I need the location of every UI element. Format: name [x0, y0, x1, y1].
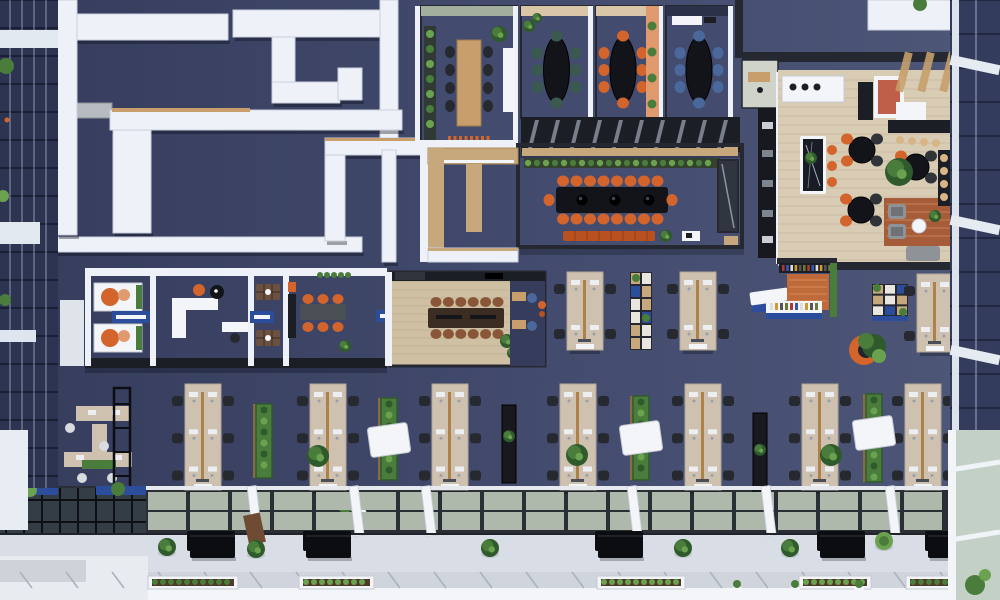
shape: [575, 453, 583, 461]
monitor: [806, 429, 815, 434]
shadow: [59, 235, 79, 239]
plant: [872, 349, 886, 363]
skylight-panel: [610, 512, 648, 530]
art-blob: [118, 289, 130, 301]
hanging-plant: [648, 48, 657, 57]
shadow: [920, 352, 950, 356]
hedge-leaf: [261, 451, 268, 458]
flowers: [539, 311, 545, 317]
room-divider: [150, 268, 156, 366]
meeting-chair: [637, 81, 648, 93]
keyboard: [318, 400, 321, 403]
conference-chair: [638, 176, 650, 187]
cabinet: [503, 48, 515, 112]
monitor: [825, 392, 834, 397]
hanging-plant: [648, 74, 657, 83]
meeting-chair: [445, 46, 455, 58]
shadow: [62, 40, 230, 44]
orange-dash: [470, 136, 473, 140]
bar-top: [888, 120, 952, 133]
shadow: [570, 350, 600, 354]
desk-row: [892, 384, 954, 494]
plant: [665, 579, 671, 585]
office-chair: [672, 396, 683, 406]
plant: [152, 579, 158, 585]
board-chair: [431, 329, 442, 339]
hedge-leaf: [261, 418, 268, 425]
sofa: [906, 246, 940, 261]
office-chair: [297, 471, 308, 481]
keyboard: [943, 290, 946, 293]
shelf-cubby: [631, 325, 640, 336]
shelf-cubby: [642, 273, 651, 284]
hedge-leaf: [871, 463, 878, 470]
monitor: [825, 429, 834, 434]
keyboard: [931, 437, 934, 440]
shadow: [85, 368, 387, 373]
meeting-chair: [570, 47, 581, 59]
book: [799, 265, 802, 271]
plant: [641, 579, 647, 585]
bench-arm: [303, 531, 309, 551]
monitor: [928, 392, 937, 397]
plant: [811, 579, 817, 585]
orange-dash: [459, 136, 462, 140]
office-chair: [99, 441, 109, 451]
keyboard: [688, 333, 691, 336]
facade-slab: [0, 430, 28, 530]
keyboard: [913, 400, 916, 403]
keyboard: [913, 474, 916, 477]
book: [815, 303, 818, 310]
hedge-leaf: [638, 399, 645, 406]
table-runner: [470, 315, 496, 319]
keyboard: [193, 474, 196, 477]
skylight-panel: [484, 512, 522, 530]
plant: [615, 160, 621, 166]
plant: [168, 579, 174, 585]
hanging-plant: [338, 272, 344, 278]
office-chair: [840, 471, 851, 481]
item: [757, 87, 763, 93]
office-chair: [348, 471, 359, 481]
monitor: [703, 280, 712, 285]
board-chair: [468, 329, 479, 339]
shape: [829, 453, 837, 461]
shape: [665, 235, 669, 239]
conf-wood-band: [522, 148, 738, 156]
wall-segment: [60, 14, 228, 40]
meeting-chair: [713, 47, 724, 59]
desk-sign: [916, 479, 929, 482]
office-chair: [789, 396, 800, 406]
keyboard: [440, 437, 443, 440]
desk-sign: [696, 479, 709, 482]
lounge-chair: [840, 194, 852, 205]
plant: [669, 160, 675, 166]
office-chair: [193, 284, 205, 296]
hedge-leaf: [638, 410, 645, 417]
plant: [617, 579, 623, 585]
facade-detail: [5, 118, 10, 123]
round-table: [848, 197, 874, 223]
wall-desk: [672, 16, 702, 25]
laptop: [704, 17, 716, 23]
bench: [820, 531, 865, 558]
skylight-panel: [484, 492, 522, 510]
office-chair: [672, 433, 683, 443]
monitor: [590, 325, 599, 330]
meeting-chair: [637, 64, 648, 76]
plant: [642, 160, 648, 166]
book: [824, 265, 827, 271]
bench: [306, 531, 351, 558]
book: [805, 303, 808, 310]
keyboard: [593, 333, 596, 336]
keyboard: [828, 474, 831, 477]
monitor: [314, 467, 323, 472]
office-chair: [348, 433, 359, 443]
booth-left: [428, 148, 444, 262]
boardroom-left-wall: [385, 272, 392, 366]
keyboard: [711, 474, 714, 477]
hedge-leaf: [871, 474, 878, 481]
desk-row: [419, 384, 481, 494]
wall-segment: [8, 237, 362, 252]
meeting-chair: [445, 82, 455, 94]
office-chair: [297, 396, 308, 406]
office-chair: [892, 471, 903, 481]
monitor: [921, 282, 930, 287]
tv-screen: [485, 273, 503, 279]
shape: [528, 25, 532, 29]
skylight-panel: [358, 512, 396, 530]
office-chair: [667, 329, 678, 339]
monitor: [208, 467, 217, 472]
plant: [216, 579, 222, 585]
shadow: [115, 233, 153, 237]
monitor: [88, 410, 96, 415]
lounge-chair: [871, 134, 883, 145]
appliance: [762, 210, 773, 217]
bar-stool: [940, 193, 948, 201]
bar-counter: [896, 102, 926, 122]
office-chair: [527, 293, 537, 303]
skylight-panel: [652, 512, 690, 530]
office-chair: [598, 396, 609, 406]
plant: [601, 579, 607, 585]
monitor: [708, 392, 717, 397]
plant: [642, 314, 650, 322]
book: [795, 265, 798, 271]
desk-end: [576, 344, 594, 349]
office-chair: [718, 284, 729, 294]
door-glass: [116, 315, 146, 319]
monitor: [590, 280, 599, 285]
appliance: [686, 233, 692, 238]
skylight-panel: [442, 492, 480, 510]
conference-chair: [584, 214, 596, 225]
conference-chair: [611, 176, 623, 187]
plant: [343, 579, 349, 585]
keyboard: [586, 400, 589, 403]
conference-chair: [571, 214, 583, 225]
board-chair: [455, 329, 466, 339]
flowers: [538, 301, 546, 309]
book: [786, 265, 789, 271]
meeting-chair: [303, 294, 314, 304]
monitor: [564, 429, 573, 434]
privacy-pod: [367, 422, 411, 457]
conference-chair: [598, 214, 610, 225]
book: [790, 265, 793, 271]
hanging-plant: [345, 272, 351, 278]
appliance: [762, 180, 773, 187]
wall-segment: [325, 155, 345, 241]
monitor: [684, 325, 693, 330]
wall-segment: [272, 82, 340, 103]
shelf-cubby: [642, 325, 651, 336]
office-chair: [605, 329, 616, 339]
wall-segment: [110, 110, 402, 130]
wall-segment: [113, 130, 151, 233]
shadow: [10, 252, 364, 256]
office-chair: [172, 433, 183, 443]
keyboard: [810, 474, 813, 477]
office-chair: [297, 433, 308, 443]
cable-tray: [696, 280, 699, 340]
cooktop: [802, 84, 809, 91]
cable-tray: [583, 280, 586, 340]
plant: [942, 579, 948, 585]
plant: [606, 160, 612, 166]
shelf-cubby: [642, 338, 651, 349]
lounge-chair: [841, 134, 853, 145]
conference-chair: [557, 214, 569, 225]
shadow: [112, 130, 404, 134]
keyboard: [586, 474, 589, 477]
keyboard: [688, 288, 691, 291]
monitor: [564, 467, 573, 472]
board-chair: [480, 329, 491, 339]
meeting-chair: [532, 64, 543, 76]
meeting-chair: [617, 31, 629, 42]
office-chair: [904, 331, 915, 341]
shelf-cubby: [642, 299, 651, 310]
monitor: [703, 325, 712, 330]
conference-chair: [638, 214, 650, 225]
plant: [633, 579, 639, 585]
meeting-table: [300, 304, 346, 320]
skylight-panel: [778, 512, 816, 530]
meeting-chair: [570, 81, 581, 93]
plant: [705, 160, 711, 166]
shape: [682, 546, 688, 552]
bar-stool: [896, 136, 904, 144]
lounge-chair: [925, 173, 937, 184]
plant: [926, 579, 932, 585]
skylight-panel: [190, 512, 228, 530]
office-chair: [554, 284, 565, 294]
office-chair: [598, 471, 609, 481]
keyboard: [706, 288, 709, 291]
plant: [335, 579, 341, 585]
skylight-panel: [820, 512, 858, 530]
monitor: [909, 392, 918, 397]
room-divider: [85, 268, 91, 366]
plant: [597, 160, 603, 166]
pantry-table: [748, 72, 770, 82]
keyboard: [593, 288, 596, 291]
booth-mid: [466, 164, 482, 232]
meeting-table: [544, 37, 570, 103]
office-chair: [605, 284, 616, 294]
shadow: [340, 100, 364, 104]
skylight-panel: [526, 512, 564, 530]
plant: [426, 60, 434, 68]
monitor: [436, 467, 445, 472]
plant: [160, 579, 166, 585]
plant: [426, 120, 434, 128]
skylight-panel: [568, 512, 606, 530]
plant: [351, 579, 357, 585]
bar-stool: [827, 161, 837, 171]
office-chair: [223, 471, 234, 481]
hedge-planter: [82, 460, 116, 469]
keyboard: [336, 437, 339, 440]
monitor: [684, 280, 693, 285]
monitor: [909, 429, 918, 434]
office-chair: [172, 471, 183, 481]
pendant-hi: [579, 197, 583, 201]
monitor: [314, 392, 323, 397]
office-chair: [470, 471, 481, 481]
artwork: [288, 282, 296, 292]
shelf-cubby: [885, 306, 895, 315]
mullion-band: [948, 430, 956, 600]
board-chair: [443, 329, 454, 339]
hedge-leaf: [386, 412, 393, 419]
hedge-leaf: [261, 462, 268, 469]
conference-chair: [625, 214, 637, 225]
meeting-chair: [483, 82, 493, 94]
plant: [327, 579, 333, 585]
book: [811, 265, 814, 271]
book: [782, 265, 785, 271]
keyboard: [693, 474, 696, 477]
hedge-leaf: [871, 452, 878, 459]
shelf-base: [872, 316, 908, 321]
keyboard: [458, 437, 461, 440]
door-glass: [254, 315, 270, 319]
meeting-chair: [713, 64, 724, 76]
keyboard: [693, 400, 696, 403]
plant: [224, 579, 230, 585]
office-chair: [107, 473, 117, 483]
shape: [508, 435, 512, 439]
side-table: [912, 219, 926, 233]
book: [780, 303, 783, 310]
book: [770, 303, 773, 310]
bench: [190, 531, 235, 558]
office-chair: [840, 433, 851, 443]
monitor: [208, 429, 217, 434]
skylight-panel: [442, 512, 480, 530]
art-blob: [101, 288, 119, 306]
skylight-panel: [190, 492, 228, 510]
skylight-panel: [316, 512, 354, 530]
shape: [316, 454, 324, 462]
credenza: [288, 294, 296, 338]
office-chair: [470, 396, 481, 406]
plant: [624, 160, 630, 166]
shelf-cubby: [631, 338, 640, 349]
plant: [827, 579, 833, 585]
book: [785, 303, 788, 310]
item: [214, 289, 218, 293]
office-chair: [527, 321, 537, 331]
bar-stool: [940, 167, 948, 175]
plant: [843, 579, 849, 585]
shape: [255, 547, 261, 553]
meeting-chair: [675, 47, 686, 59]
bar-stool: [827, 145, 837, 155]
facade-slab: [0, 222, 40, 244]
privacy-pod: [619, 420, 663, 455]
plant: [835, 579, 841, 585]
office-chair: [904, 286, 915, 296]
monitor: [928, 429, 937, 434]
monitor: [583, 392, 592, 397]
shelf-cubby: [873, 306, 883, 315]
plant: [552, 160, 558, 166]
monitor: [806, 392, 815, 397]
bench: [303, 531, 352, 561]
meeting-table: [610, 37, 636, 103]
desk-row: [789, 384, 851, 494]
meeting-room: [521, 6, 593, 118]
shelf-cubby: [631, 312, 640, 323]
book: [807, 265, 810, 271]
monitor: [909, 467, 918, 472]
keyboard: [193, 437, 196, 440]
hanging-plant: [648, 100, 657, 109]
monitor: [708, 467, 717, 472]
office-chair: [223, 396, 234, 406]
meeting-chair: [318, 322, 329, 332]
plant: [208, 579, 214, 585]
book: [803, 265, 806, 271]
skylight-panel: [694, 492, 732, 510]
wall-segment: [272, 37, 295, 83]
monitor: [689, 429, 698, 434]
office-chair: [65, 423, 75, 433]
pillow: [265, 289, 271, 295]
board-chair: [468, 297, 479, 307]
plant: [899, 308, 907, 316]
room-divider: [588, 6, 593, 118]
shape: [166, 545, 172, 551]
board-chair: [480, 297, 491, 307]
plant: [426, 30, 434, 38]
shadow: [384, 262, 398, 266]
shape: [536, 17, 540, 21]
wood-post: [724, 236, 738, 245]
keyboard: [211, 400, 214, 403]
monitor: [921, 327, 930, 332]
plant: [687, 160, 693, 166]
meeting-chair: [675, 64, 686, 76]
